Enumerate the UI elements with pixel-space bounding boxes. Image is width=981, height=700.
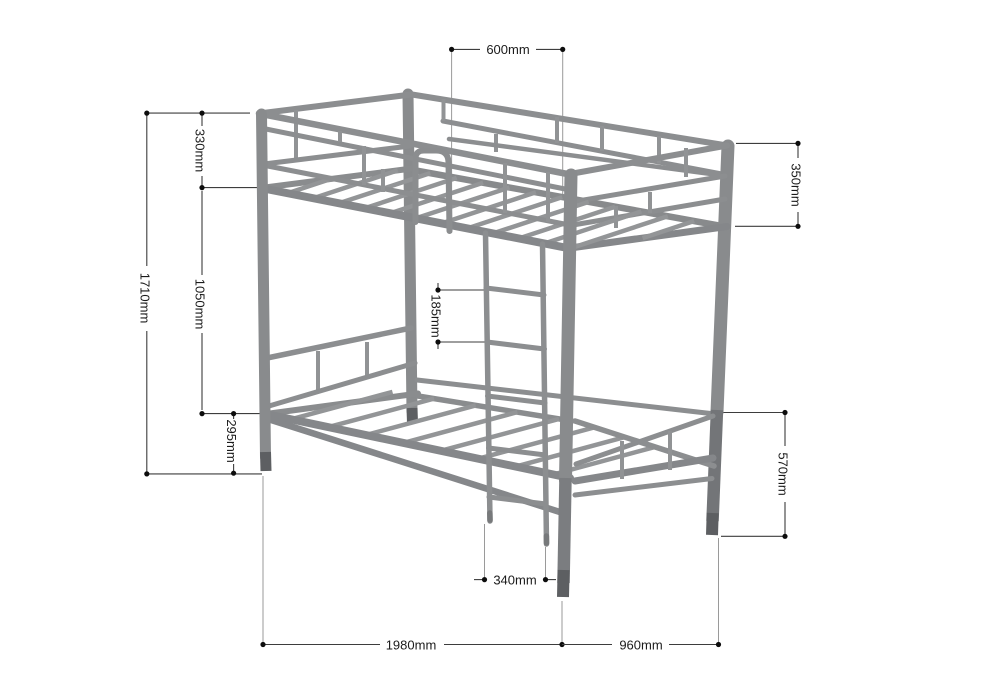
svg-text:960mm: 960mm <box>619 637 662 652</box>
svg-text:1710mm: 1710mm <box>137 273 152 324</box>
svg-text:1980mm: 1980mm <box>386 637 437 652</box>
svg-text:330mm: 330mm <box>193 129 208 172</box>
svg-text:185mm: 185mm <box>429 294 444 337</box>
svg-text:600mm: 600mm <box>486 42 529 57</box>
svg-text:295mm: 295mm <box>224 419 239 462</box>
svg-text:1050mm: 1050mm <box>193 279 208 330</box>
svg-text:340mm: 340mm <box>493 572 536 587</box>
svg-text:350mm: 350mm <box>789 163 804 206</box>
svg-text:570mm: 570mm <box>776 452 791 495</box>
